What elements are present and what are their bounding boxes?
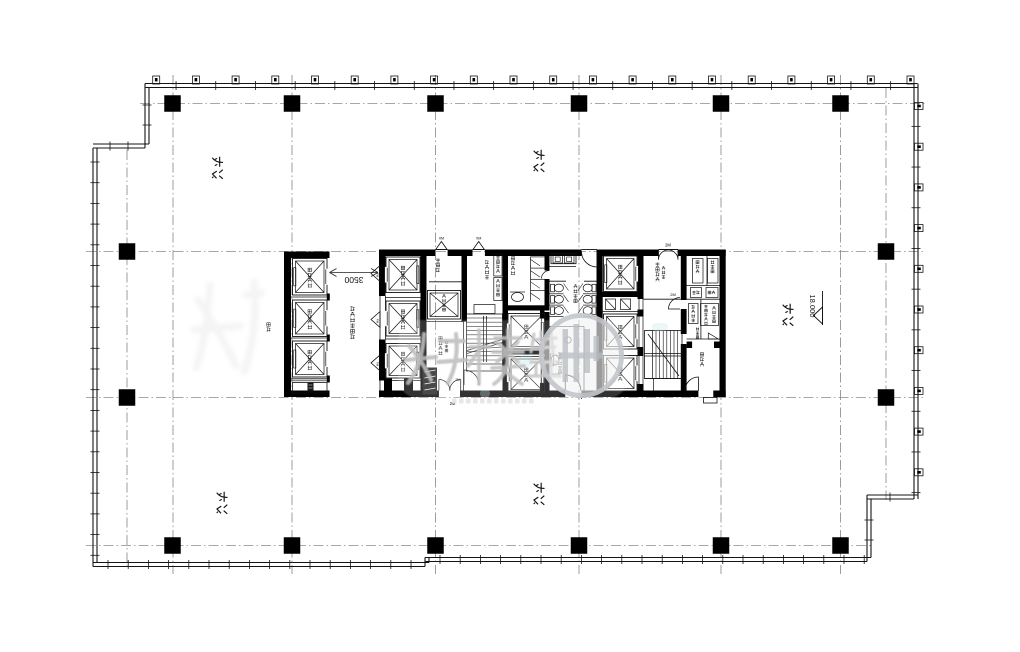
svg-text:2M: 2M [670, 292, 676, 297]
svg-text:2M: 2M [665, 243, 671, 248]
svg-text:XM: XM [476, 237, 481, 241]
svg-text:FM: FM [376, 362, 380, 367]
svg-text:3500: 3500 [344, 275, 363, 285]
svg-text:XM: XM [439, 237, 444, 241]
svg-text:FM: FM [376, 273, 380, 278]
svg-text:FM: FM [376, 319, 380, 324]
